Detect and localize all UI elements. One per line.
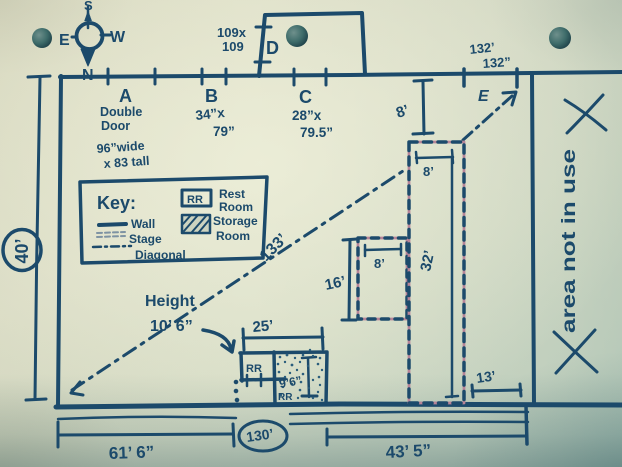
svg-text:132’: 132’ [469,39,496,57]
svg-text:Diagonal: Diagonal [135,248,186,262]
svg-text:109x: 109x [217,25,247,40]
svg-text:area not in use: area not in use [559,149,580,333]
svg-text:96”wide: 96”wide [96,139,145,156]
svg-text:E: E [59,32,70,49]
svg-text:Height: Height [145,293,195,310]
svg-text:Wall: Wall [131,217,155,231]
svg-text:16’: 16’ [323,273,347,294]
svg-text:8’: 8’ [423,164,434,179]
svg-text:43’ 5”: 43’ 5” [385,441,431,462]
svg-text:40’: 40’ [12,238,32,263]
svg-text:S: S [84,0,93,13]
svg-text:Double: Double [100,105,142,119]
svg-text:34”x: 34”x [195,105,226,123]
svg-text:79”: 79” [213,124,235,139]
svg-text:Door: Door [101,119,130,133]
svg-text:C: C [299,87,312,107]
svg-text:Room: Room [219,200,253,214]
svg-text:61’ 6”: 61’ 6” [109,442,155,463]
svg-text:8’: 8’ [374,256,385,271]
svg-text:8’: 8’ [394,102,411,122]
svg-text:B: B [205,86,218,106]
svg-text:109: 109 [222,39,244,54]
svg-text:RR: RR [246,363,262,375]
svg-text:x 83 tall: x 83 tall [103,154,150,171]
svg-text:A: A [119,86,132,106]
svg-text:13’: 13’ [475,367,497,386]
svg-text:79.5”: 79.5” [300,125,333,140]
svg-text:9’6”: 9’6” [278,373,303,391]
svg-text:28”x: 28”x [292,108,322,123]
svg-text:Room: Room [216,229,250,243]
svg-text:D: D [266,38,279,58]
svg-text:Key:: Key: [97,193,136,213]
svg-text:Stage: Stage [129,232,162,246]
svg-text:25’: 25’ [252,317,274,336]
svg-text:Rest: Rest [219,187,245,201]
svg-text:132”: 132” [482,54,511,71]
svg-text:32’: 32’ [417,249,438,273]
svg-text:RR: RR [278,392,293,403]
svg-text:N: N [82,67,94,84]
svg-text:E: E [478,88,490,105]
svg-text:Storage: Storage [213,214,258,228]
svg-text:130’: 130’ [245,425,274,445]
svg-text:W: W [110,29,126,46]
svg-text:RR: RR [187,194,203,206]
svg-text:10’ 6”: 10’ 6” [150,318,193,335]
